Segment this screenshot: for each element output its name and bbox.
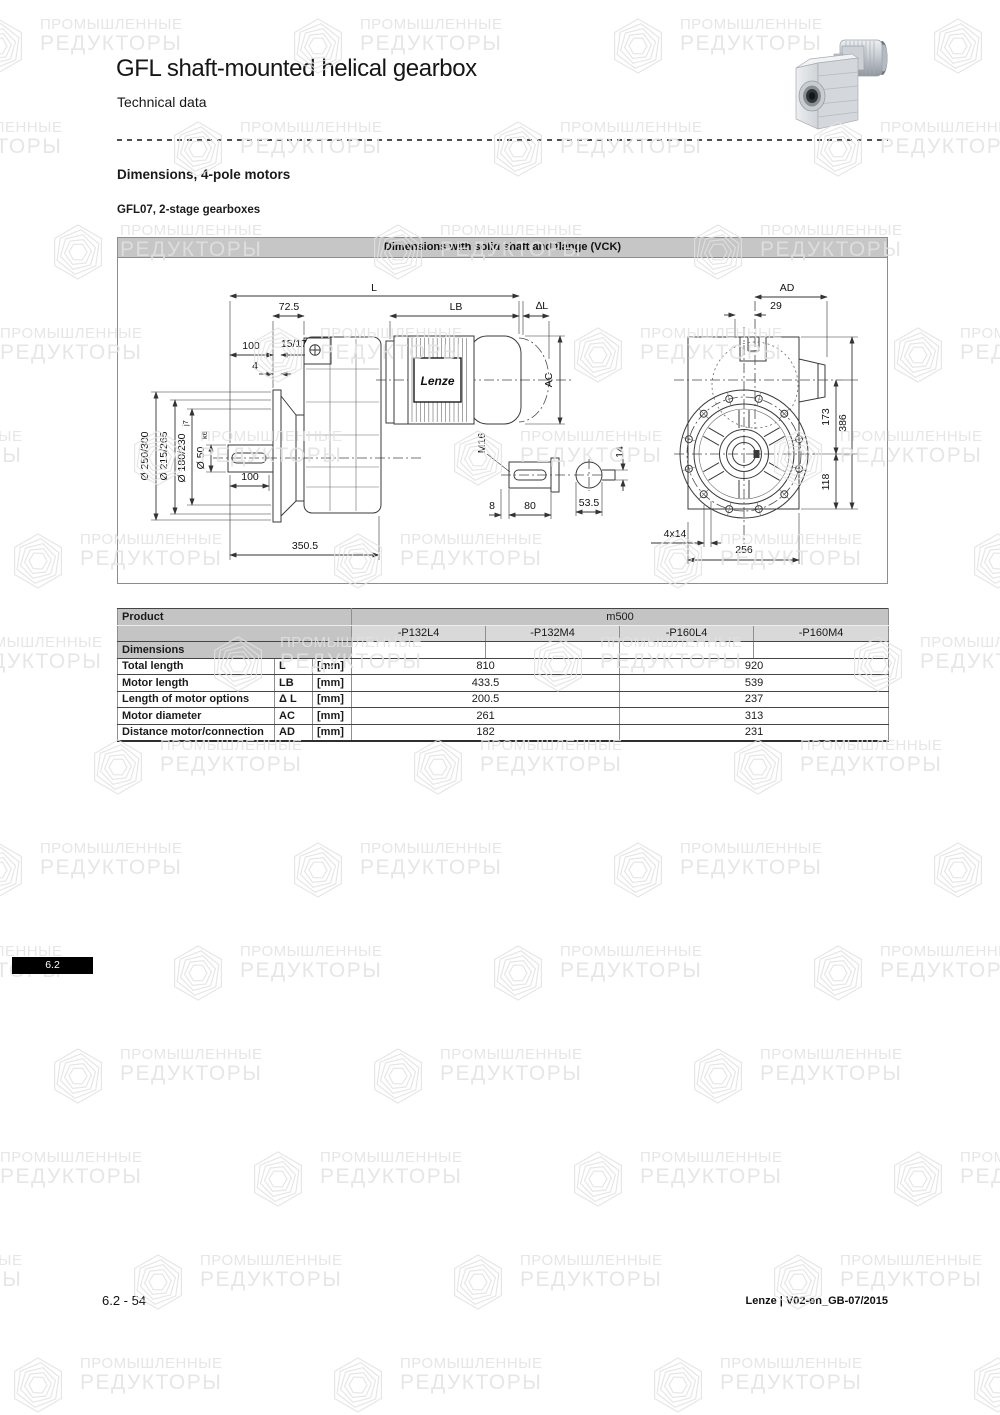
watermark-text-line2: РЕДУКТОРЫ bbox=[840, 1269, 982, 1291]
dashed-separator bbox=[117, 139, 888, 141]
dim-14: 14 bbox=[614, 446, 626, 458]
dim-15-17: 15/17 bbox=[281, 338, 307, 350]
watermark-text-line2: РЕДУКТОРЫ bbox=[0, 445, 22, 467]
watermark-text-line1: ПРОМЫШЛЕННЫЕ bbox=[840, 1252, 982, 1269]
front-view bbox=[674, 301, 842, 544]
row-unit: [mm] bbox=[313, 658, 352, 675]
watermark: ПРОМЫШЛЕННЫЕРЕДУКТОРЫ bbox=[242, 1149, 462, 1209]
row-value: 200.5 bbox=[352, 691, 620, 708]
watermark-hex-logo-icon bbox=[42, 222, 114, 282]
row-symbol: AC bbox=[275, 708, 313, 725]
watermark-hex-logo-icon bbox=[0, 16, 34, 76]
watermark-text-line1: ПРОМЫШЛЕННЫЕ bbox=[360, 16, 502, 33]
table-row: Motor length LB [mm] 433.5 539 bbox=[118, 675, 889, 692]
dim-dia-215-265: Ø 215/265 bbox=[158, 431, 170, 480]
watermark: ПРОМЫШЛЕННЫЕРЕДУКТОРЫ bbox=[962, 1355, 1000, 1415]
watermark-hex-logo-icon bbox=[362, 1046, 434, 1106]
dim-173: 173 bbox=[820, 408, 832, 426]
section-heading: Dimensions, 4-pole motors bbox=[117, 167, 290, 182]
table-row: Total length L [mm] 810 920 bbox=[118, 658, 889, 675]
row-unit: [mm] bbox=[313, 708, 352, 725]
watermark-text-line2: РЕДУКТОРЫ bbox=[40, 857, 182, 879]
watermark-text-line1: ПРОМЫШЛЕННЫЕ bbox=[0, 119, 62, 136]
watermark-text-line2: РЕДУКТОРЫ bbox=[480, 754, 622, 776]
watermark-text-line2: РЕДУКТОРЫ bbox=[680, 857, 822, 879]
watermark-text-line1: ПРОМЫШЛЕННЫЕ bbox=[0, 634, 102, 651]
watermark-text-line2: РЕДУКТОРЫ bbox=[0, 651, 102, 673]
dim-delta-L: ∆L bbox=[536, 300, 548, 312]
watermark-text-line1: ПРОМЫШЛЕННЫЕ bbox=[0, 1252, 22, 1269]
watermark-text-line1: ПРОМЫШЛЕННЫЕ bbox=[240, 119, 382, 136]
watermark: ПРОМЫШЛЕННЫЕРЕДУКТОРЫ bbox=[682, 1046, 902, 1106]
watermark-hex-logo-icon bbox=[562, 1149, 634, 1209]
watermark-text-line1: ПРОМЫШЛЕННЫЕ bbox=[920, 634, 1000, 651]
watermark: ПРОМЫШЛЕННЫЕРЕДУКТОРЫ bbox=[642, 1355, 862, 1415]
watermark-hex-logo-icon bbox=[802, 943, 874, 1003]
watermark: ПРОМЫШЛЕННЫЕРЕДУКТОРЫ bbox=[82, 737, 302, 797]
chapter-tab: 6.2 bbox=[12, 957, 93, 974]
watermark-hex-logo-icon bbox=[482, 943, 554, 1003]
table-row: Motor diameter AC [mm] 261 313 bbox=[118, 708, 889, 725]
dim-L: L bbox=[371, 282, 377, 294]
shaft-detail bbox=[501, 458, 615, 492]
watermark-text-line2: РЕДУКТОРЫ bbox=[960, 342, 1000, 364]
watermark-hex-logo-icon bbox=[922, 840, 994, 900]
row-label: Distance motor/connection bbox=[118, 724, 275, 741]
gearbox-photo-graphic bbox=[788, 28, 892, 132]
watermark-text-line1: ПРОМЫШЛЕННЫЕ bbox=[520, 1252, 662, 1269]
side-view-dimensions: L 72.5 LB ∆L 100 15/17 4 bbox=[139, 282, 628, 560]
watermark: ПРОМЫШЛЕННЫЕРЕДУКТОРЫ bbox=[42, 1046, 262, 1106]
watermark-text-line2: РЕДУКТОРЫ bbox=[360, 33, 502, 55]
watermark-text-line1: ПРОМЫШЛЕННЫЕ bbox=[40, 840, 182, 857]
dim-53-5: 53.5 bbox=[579, 497, 600, 509]
watermark: ПРОМЫШЛЕННЫЕРЕДУКТОРЫ bbox=[362, 1046, 582, 1106]
watermark-hex-logo-icon bbox=[602, 16, 674, 76]
product-header-cell: Product bbox=[118, 609, 352, 626]
watermark-text-line1: ПРОМЫШЛЕННЫЕ bbox=[760, 1046, 902, 1063]
row-label: Motor length bbox=[118, 675, 275, 692]
dimension-table: Product m500 -P132L4 -P132M4 -P160L4 -P1… bbox=[117, 608, 888, 742]
dim-dia-180-230-tol: j7 bbox=[181, 420, 190, 427]
watermark-text-line2: РЕДУКТОРЫ bbox=[80, 1372, 222, 1394]
dim-100-bottom: 100 bbox=[241, 471, 259, 483]
table-row-product: Product m500 bbox=[118, 609, 889, 626]
dim-80: 80 bbox=[524, 500, 536, 512]
row-label: Motor diameter bbox=[118, 708, 275, 725]
watermark: ПРОМЫШЛЕННЫЕРЕДУКТОРЫ bbox=[882, 1149, 1000, 1209]
dim-M16: M16 bbox=[476, 433, 488, 454]
watermark: ПРОМЫШЛЕННЫЕРЕДУКТОРЫ bbox=[602, 840, 822, 900]
watermark: ПРОМЫШЛЕННЫЕРЕДУКТОРЫ bbox=[722, 737, 942, 797]
dim-386: 386 bbox=[837, 414, 849, 432]
watermark-text-line2: РЕДУКТОРЫ bbox=[200, 1269, 342, 1291]
watermark-hex-logo-icon bbox=[962, 1355, 1000, 1415]
watermark-text-line2: РЕДУКТОРЫ bbox=[440, 1063, 582, 1085]
row-unit: [mm] bbox=[313, 675, 352, 692]
watermark-hex-logo-icon bbox=[242, 1149, 314, 1209]
watermark-text-line2: РЕДУКТОРЫ bbox=[760, 1063, 902, 1085]
watermark: ПРОМЫШЛЕННЫЕРЕДУКТОРЫ bbox=[482, 119, 702, 179]
watermark: ПРОМЫШЛЕННЫЕРЕДУКТОРЫ bbox=[402, 737, 622, 797]
dim-8: 8 bbox=[489, 500, 495, 512]
watermark-text-line1: ПРОМЫШЛЕННЫЕ bbox=[560, 119, 702, 136]
watermark: ПРОМЫШЛЕННЫЕРЕДУКТОРЫ bbox=[482, 943, 702, 1003]
watermark-text-line1: ПРОМЫШЛЕННЫЕ bbox=[400, 1355, 542, 1372]
front-view-dimensions: AD 29 173 118 386 4x14 256 bbox=[651, 282, 858, 564]
watermark-text-line1: ПРОМЫШЛЕННЫЕ bbox=[880, 119, 1000, 136]
watermark-text-line1: ПРОМЫШЛЕННЫЕ bbox=[240, 943, 382, 960]
dim-dia-250-300: Ø 250/300 bbox=[139, 431, 151, 480]
watermark-hex-logo-icon bbox=[402, 737, 474, 797]
dim-AC: AC bbox=[543, 372, 555, 387]
watermark-hex-logo-icon bbox=[2, 1355, 74, 1415]
watermark-hex-logo-icon bbox=[642, 1355, 714, 1415]
watermark-text-line1: ПРОМЫШЛЕННЫЕ bbox=[720, 1355, 862, 1372]
page-subtitle: Technical data bbox=[117, 94, 207, 110]
watermark-text-line1: ПРОМЫШЛЕННЫЕ bbox=[880, 943, 1000, 960]
row-label: Total length bbox=[118, 658, 275, 675]
watermark: ПРОМЫШЛЕННЫЕРЕДУКТОРЫ bbox=[0, 1149, 142, 1209]
row-value: 433.5 bbox=[352, 675, 620, 692]
row-symbol: LB bbox=[275, 675, 313, 692]
dim-LB: LB bbox=[450, 301, 463, 313]
page-title: GFL shaft-mounted helical gearbox bbox=[116, 55, 477, 83]
watermark-hex-logo-icon bbox=[282, 840, 354, 900]
row-symbol: L bbox=[275, 658, 313, 675]
watermark-hex-logo-icon bbox=[602, 840, 674, 900]
watermark-text-line1: ПРОМЫШЛЕННЫЕ bbox=[680, 840, 822, 857]
subsection-heading: GFL07, 2-stage gearboxes bbox=[117, 204, 260, 216]
watermark-hex-logo-icon bbox=[882, 1149, 954, 1209]
dim-29: 29 bbox=[770, 300, 782, 312]
watermark-text-line2: РЕДУКТОРЫ bbox=[120, 1063, 262, 1085]
watermark-hex-logo-icon bbox=[882, 325, 954, 385]
dim-dia-50-tol: k6 bbox=[200, 431, 209, 439]
table-row-section: Dimensions bbox=[118, 642, 889, 659]
watermark-text-line2: РЕДУКТОРЫ bbox=[40, 33, 182, 55]
dim-dia-180-230: Ø 180/230 bbox=[176, 433, 188, 482]
dim-4: 4 bbox=[252, 360, 258, 372]
watermark: ПРОМЫШЛЕННЫЕРЕДУКТОРЫ bbox=[922, 840, 1000, 900]
watermark: ПРОМЫШЛЕННЫЕРЕДУКТОРЫ bbox=[0, 840, 182, 900]
watermark-hex-logo-icon bbox=[42, 1046, 114, 1106]
technical-drawing: Dimensions with solid shaft and flange (… bbox=[117, 237, 888, 584]
watermark-text-line1: ПРОМЫШЛЕННЫЕ bbox=[360, 840, 502, 857]
watermark: ПРОМЫШЛЕННЫЕРЕДУКТОРЫ bbox=[0, 1252, 22, 1312]
connection-box bbox=[799, 359, 825, 402]
drawing-title-bar: Dimensions with solid shaft and flange (… bbox=[118, 238, 887, 258]
watermark-text-line2: РЕДУКТОРЫ bbox=[160, 754, 302, 776]
section-cell: Dimensions bbox=[118, 642, 352, 659]
column-header: -P160L4 bbox=[620, 625, 754, 642]
watermark-text-line2: РЕДУКТОРЫ bbox=[0, 1269, 22, 1291]
watermark-text-line2: РЕДУКТОРЫ bbox=[800, 754, 942, 776]
watermark-text-line2: РЕДУКТОРЫ bbox=[240, 960, 382, 982]
watermark-text-line2: РЕДУКТОРЫ bbox=[560, 960, 702, 982]
watermark-text-line2: РЕДУКТОРЫ bbox=[0, 1166, 142, 1188]
dim-dia-50: Ø 50 bbox=[195, 446, 207, 469]
row-value: 237 bbox=[620, 691, 889, 708]
watermark-hex-logo-icon bbox=[0, 840, 34, 900]
watermark-text-line2: РЕДУКТОРЫ bbox=[640, 1166, 782, 1188]
row-value: 182 bbox=[352, 724, 620, 741]
side-view: Lenze bbox=[213, 336, 573, 522]
watermark-text-line1: ПРОМЫШЛЕННЫЕ bbox=[120, 1046, 262, 1063]
footer-document-id: Lenze | V02-en_GB-07/2015 bbox=[117, 1295, 888, 1307]
row-label: Length of motor options bbox=[118, 691, 275, 708]
watermark: ПРОМЫШЛЕННЫЕРЕДУКТОРЫ bbox=[0, 634, 102, 694]
watermark: ПРОМЫШЛЕННЫЕРЕДУКТОРЫ bbox=[0, 119, 62, 179]
row-value: 261 bbox=[352, 708, 620, 725]
watermark: ПРОМЫШЛЕННЫЕРЕДУКТОРЫ bbox=[322, 1355, 542, 1415]
watermark-text-line2: РЕДУКТОРЫ bbox=[520, 1269, 662, 1291]
table-row: Distance motor/connection AD [mm] 182 23… bbox=[118, 724, 889, 741]
dim-118: 118 bbox=[820, 473, 832, 490]
empty-cell bbox=[118, 625, 352, 642]
watermark-text-line1: ПРОМЫШЛЕННЫЕ bbox=[960, 325, 1000, 342]
watermark-text-line2: РЕДУКТОРЫ bbox=[0, 136, 62, 158]
watermark-hex-logo-icon bbox=[82, 737, 154, 797]
watermark-text-line1: ПРОМЫШЛЕННЫЕ bbox=[200, 1252, 342, 1269]
watermark-text-line2: РЕДУКТОРЫ bbox=[720, 1372, 862, 1394]
row-symbol: Δ L bbox=[275, 691, 313, 708]
drawing-canvas: Lenze bbox=[118, 258, 887, 584]
vent-screw-icon bbox=[310, 345, 320, 355]
watermark-hex-logo-icon bbox=[722, 737, 794, 797]
table-row: Length of motor options Δ L [mm] 200.5 2… bbox=[118, 691, 889, 708]
watermark-text-line1: ПРОМЫШЛЕННЫЕ bbox=[440, 1046, 582, 1063]
watermark-text-line1: ПРОМЫШЛЕННЫЕ bbox=[40, 16, 182, 33]
watermark: ПРОМЫШЛЕННЫЕРЕДУКТОРЫ bbox=[882, 325, 1000, 385]
watermark-text-line1: ПРОМЫШЛЕННЫЕ bbox=[560, 943, 702, 960]
watermark-text-line2: РЕДУКТОРЫ bbox=[880, 960, 1000, 982]
watermark-text-line2: РЕДУКТОРЫ bbox=[880, 136, 1000, 158]
watermark: ПРОМЫШЛЕННЫЕРЕДУКТОРЫ bbox=[0, 428, 22, 488]
watermark: ПРОМЫШЛЕННЫЕРЕДУКТОРЫ bbox=[162, 943, 382, 1003]
table-row-motor-columns: -P132L4 -P132M4 -P160L4 -P160M4 bbox=[118, 625, 889, 642]
watermark-text-line2: РЕДУКТОРЫ bbox=[320, 1166, 462, 1188]
watermark-hex-logo-icon bbox=[482, 119, 554, 179]
watermark-text-line1: ПРОМЫШЛЕННЫЕ bbox=[320, 1149, 462, 1166]
dim-4x14: 4x14 bbox=[664, 528, 687, 540]
row-value: 920 bbox=[620, 658, 889, 675]
row-value: 539 bbox=[620, 675, 889, 692]
group-header-cell: m500 bbox=[352, 609, 889, 626]
row-symbol: AD bbox=[275, 724, 313, 741]
watermark-hex-logo-icon bbox=[322, 1355, 394, 1415]
watermark-hex-logo-icon bbox=[682, 1046, 754, 1106]
watermark: ПРОМЫШЛЕННЫЕРЕДУКТОРЫ bbox=[922, 16, 1000, 76]
row-unit: [mm] bbox=[313, 691, 352, 708]
watermark-text-line2: РЕДУКТОРЫ bbox=[960, 1166, 1000, 1188]
watermark-text-line1: ПРОМЫШЛЕННЫЕ bbox=[0, 1149, 142, 1166]
watermark-text-line1: ПРОМЫШЛЕННЫЕ bbox=[0, 428, 22, 445]
watermark-hex-logo-icon bbox=[2, 531, 74, 591]
product-photo bbox=[788, 28, 892, 132]
dim-350-5: 350.5 bbox=[292, 540, 318, 552]
column-header: -P132M4 bbox=[486, 625, 620, 642]
row-value: 810 bbox=[352, 658, 620, 675]
row-value: 231 bbox=[620, 724, 889, 741]
watermark: ПРОМЫШЛЕННЫЕРЕДУКТОРЫ bbox=[282, 840, 502, 900]
lenze-brand-label: Lenze bbox=[420, 374, 454, 388]
column-header: -P132L4 bbox=[352, 625, 486, 642]
watermark: ПРОМЫШЛЕННЫЕРЕДУКТОРЫ bbox=[562, 1149, 782, 1209]
row-value: 313 bbox=[620, 708, 889, 725]
dim-72-5: 72.5 bbox=[279, 301, 300, 313]
watermark: ПРОМЫШЛЕННЫЕРЕДУКТОРЫ bbox=[962, 531, 1000, 591]
dim-100-top: 100 bbox=[242, 340, 260, 352]
watermark-hex-logo-icon bbox=[162, 943, 234, 1003]
watermark-text-line2: РЕДУКТОРЫ bbox=[360, 857, 502, 879]
dim-256: 256 bbox=[735, 544, 753, 556]
watermark-text-line2: РЕДУКТОРЫ bbox=[400, 1372, 542, 1394]
column-header: -P160M4 bbox=[754, 625, 889, 642]
watermark-hex-logo-icon bbox=[962, 531, 1000, 591]
dim-AD: AD bbox=[780, 282, 795, 294]
watermark: ПРОМЫШЛЕННЫЕРЕДУКТОРЫ bbox=[802, 943, 1000, 1003]
watermark: ПРОМЫШЛЕННЫЕРЕДУКТОРЫ bbox=[2, 1355, 222, 1415]
watermark-text-line1: ПРОМЫШЛЕННЫЕ bbox=[640, 1149, 782, 1166]
watermark-text-line1: ПРОМЫШЛЕННЫЕ bbox=[80, 1355, 222, 1372]
watermark-text-line2: РЕДУКТОРЫ bbox=[920, 651, 1000, 673]
row-unit: [mm] bbox=[313, 724, 352, 741]
watermark-text-line1: ПРОМЫШЛЕННЫЕ bbox=[960, 1149, 1000, 1166]
watermark-hex-logo-icon bbox=[922, 16, 994, 76]
